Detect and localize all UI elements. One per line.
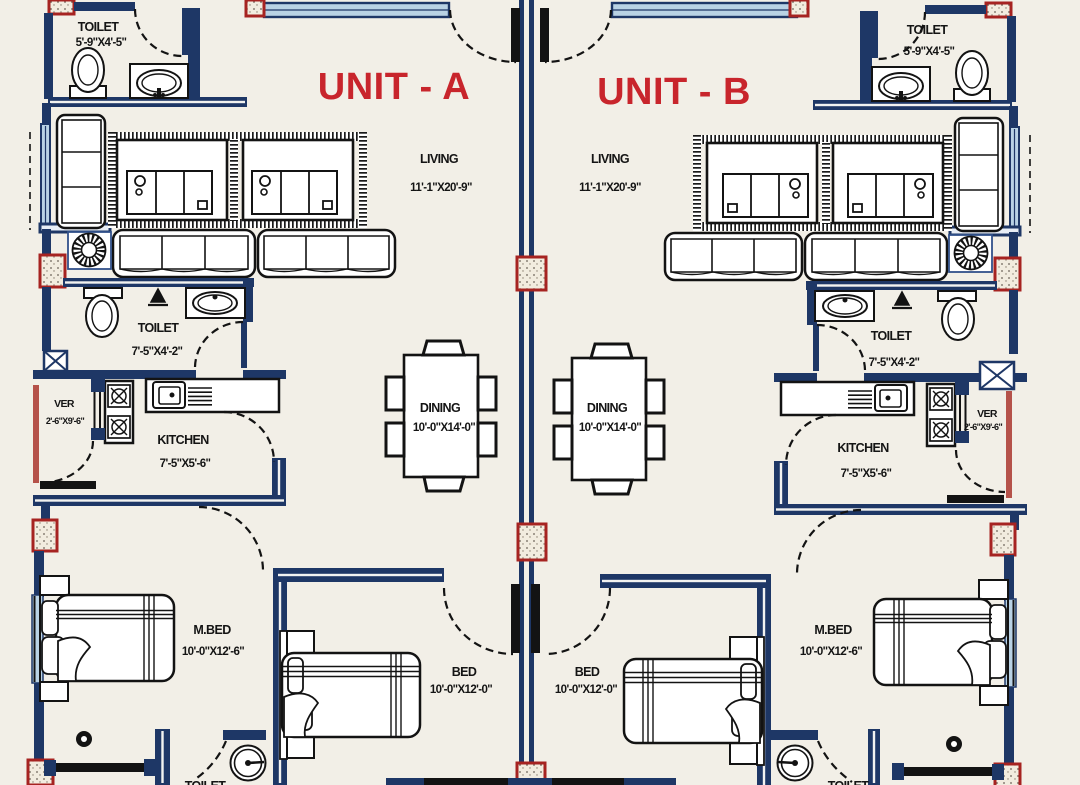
svg-text:2'-6"X9'-6": 2'-6"X9'-6" bbox=[964, 422, 1003, 432]
svg-text:10'-0"X14'-0": 10'-0"X14'-0" bbox=[579, 422, 641, 434]
svg-text:M.BED: M.BED bbox=[814, 623, 852, 637]
svg-text:BED: BED bbox=[452, 665, 477, 679]
svg-text:TOILET: TOILET bbox=[185, 779, 227, 785]
svg-text:VER: VER bbox=[54, 398, 75, 410]
svg-text:BED: BED bbox=[575, 665, 600, 679]
svg-text:5'-9"X4'-5": 5'-9"X4'-5" bbox=[76, 37, 127, 49]
svg-text:7'-5"X4'-2": 7'-5"X4'-2" bbox=[132, 346, 183, 358]
svg-text:UNIT - A: UNIT - A bbox=[318, 66, 470, 108]
svg-text:VER: VER bbox=[977, 408, 998, 420]
svg-text:2'-6"X9'-6": 2'-6"X9'-6" bbox=[46, 416, 85, 426]
svg-text:KITCHEN: KITCHEN bbox=[157, 433, 209, 447]
svg-text:TOILET: TOILET bbox=[138, 321, 180, 335]
svg-text:KITCHEN: KITCHEN bbox=[837, 441, 889, 455]
svg-text:10'-0"X12'-6": 10'-0"X12'-6" bbox=[800, 646, 862, 658]
svg-text:10'-0"X12'-0": 10'-0"X12'-0" bbox=[430, 684, 492, 696]
svg-text:10'-0"X14'-0": 10'-0"X14'-0" bbox=[413, 422, 475, 434]
svg-text:10'-0"X12'-6": 10'-0"X12'-6" bbox=[182, 646, 244, 658]
svg-text:UNIT - B: UNIT - B bbox=[597, 71, 751, 113]
svg-text:7'-5"X4'-2": 7'-5"X4'-2" bbox=[869, 357, 920, 369]
svg-text:DINING: DINING bbox=[587, 401, 627, 415]
svg-text:7'-5"X5'-6": 7'-5"X5'-6" bbox=[841, 468, 892, 480]
svg-text:5'-9"X4'-5": 5'-9"X4'-5" bbox=[904, 46, 955, 58]
svg-text:DINING: DINING bbox=[420, 401, 460, 415]
svg-text:7'-5"X5'-6": 7'-5"X5'-6" bbox=[160, 458, 211, 470]
svg-text:10'-0"X12'-0": 10'-0"X12'-0" bbox=[555, 684, 617, 696]
svg-text:TOILET: TOILET bbox=[907, 23, 949, 37]
svg-text:TOILET: TOILET bbox=[828, 779, 870, 785]
svg-text:TOILET: TOILET bbox=[78, 20, 120, 34]
svg-text:11'-1"X20'-9": 11'-1"X20'-9" bbox=[579, 182, 641, 194]
svg-text:LIVING: LIVING bbox=[420, 152, 458, 166]
svg-text:TOILET: TOILET bbox=[871, 329, 913, 343]
svg-text:M.BED: M.BED bbox=[193, 623, 231, 637]
svg-text:LIVING: LIVING bbox=[591, 152, 629, 166]
svg-text:11'-1"X20'-9": 11'-1"X20'-9" bbox=[410, 182, 472, 194]
